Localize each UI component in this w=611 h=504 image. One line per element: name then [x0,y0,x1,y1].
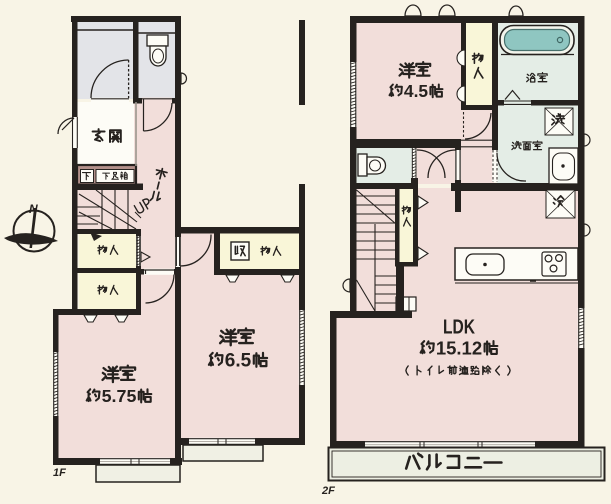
svg-text:4.5: 4.5 [404,81,429,101]
svg-text:2F: 2F [321,485,335,497]
svg-text:1F: 1F [53,467,66,479]
svg-text:6.5: 6.5 [225,351,252,372]
svg-text:N: N [29,202,38,216]
svg-text:LDK: LDK [443,317,475,339]
svg-text:5.75: 5.75 [102,386,137,406]
svg-text:15.12: 15.12 [436,337,482,358]
